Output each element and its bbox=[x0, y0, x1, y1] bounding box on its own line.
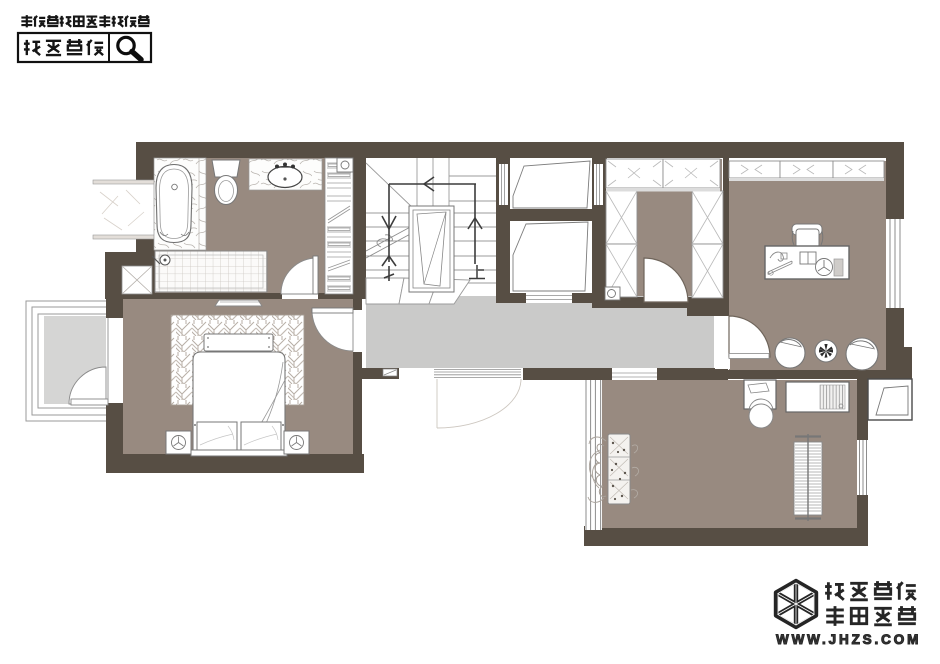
svg-text:WWW.JHZS.COM: WWW.JHZS.COM bbox=[776, 632, 921, 647]
